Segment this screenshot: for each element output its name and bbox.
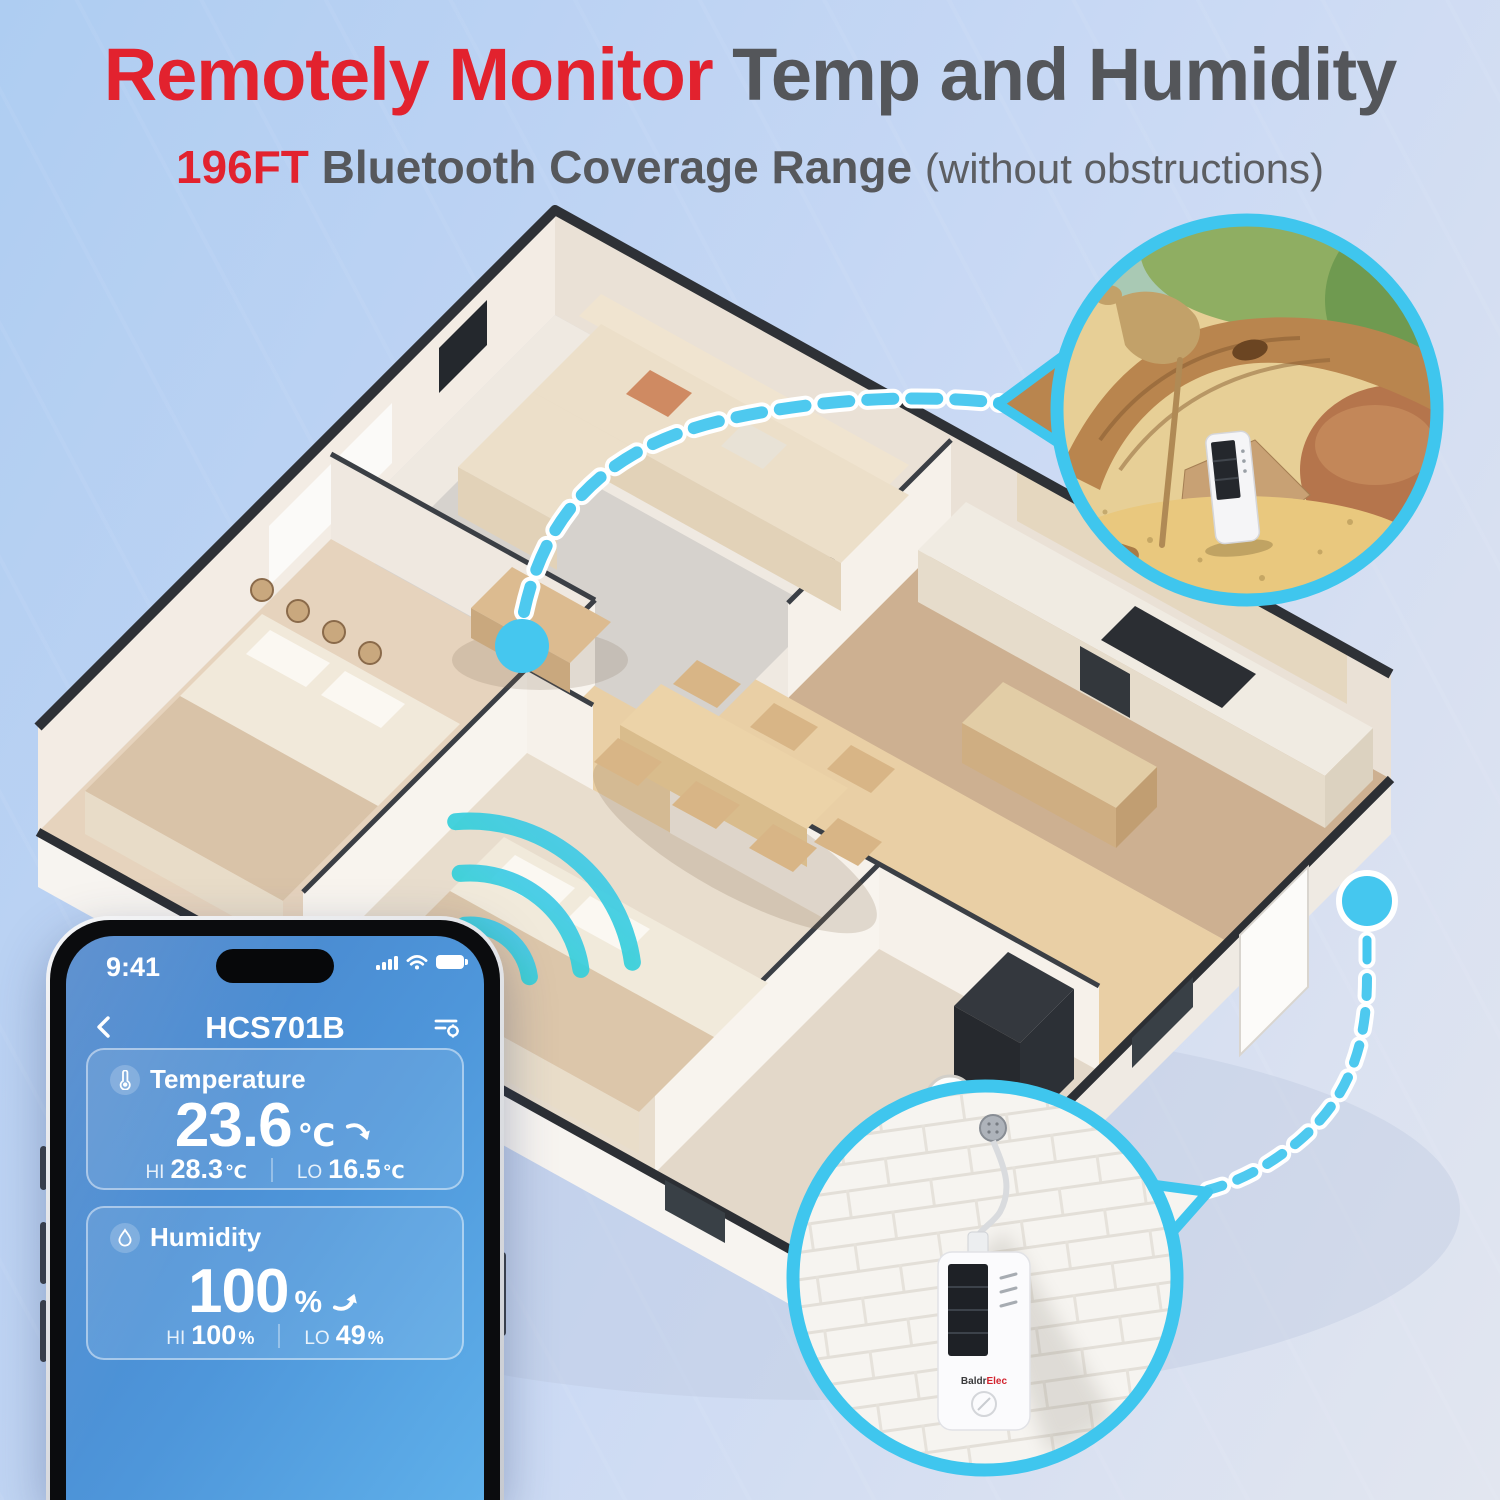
- app-screen: 9:41 HCS701B: [66, 936, 484, 1500]
- humidity-unit: %: [294, 1284, 322, 1320]
- temperature-card: Temperature 23.6 ℃ HI28.3℃ LO16.5℃: [86, 1048, 464, 1190]
- temperature-unit: ℃: [298, 1118, 336, 1154]
- page-subtitle: 196FT Bluetooth Coverage Range (without …: [0, 140, 1500, 194]
- humidity-value: 100: [188, 1256, 288, 1327]
- marketing-page: Remotely Monitor Temp and Humidity 196FT…: [0, 0, 1500, 1500]
- wall-hook: [980, 1115, 1006, 1141]
- subtitle-main: Bluetooth Coverage Range: [309, 141, 925, 193]
- humidity-label: Humidity: [150, 1222, 261, 1253]
- humidity-hilo: HI100% LO49%: [88, 1320, 462, 1351]
- battery-icon: [436, 955, 464, 969]
- droplet-icon: [110, 1223, 140, 1253]
- trend-up-icon: [330, 1284, 362, 1316]
- nav-bar: HCS701B: [82, 1008, 468, 1048]
- temperature-value: 23.6: [175, 1090, 292, 1161]
- sensor-dot-exterior: [1339, 873, 1395, 929]
- trend-down-icon: [343, 1118, 375, 1150]
- wifi-icon: [406, 954, 428, 970]
- title-rest: Temp and Humidity: [713, 33, 1397, 116]
- phone-bezel: 9:41 HCS701B: [50, 920, 500, 1500]
- status-icons: [376, 954, 464, 970]
- subtitle-range: 196FT: [176, 141, 309, 193]
- header: Remotely Monitor Temp and Humidity 196FT…: [0, 36, 1500, 194]
- device-brand-label: BaldrElec: [961, 1376, 1008, 1387]
- humidity-card: Humidity 100 % HI100%: [86, 1206, 464, 1360]
- sensor-dot-living: [495, 619, 549, 673]
- status-time: 9:41: [106, 952, 160, 983]
- temperature-hilo: HI28.3℃ LO16.5℃: [88, 1154, 462, 1185]
- subtitle-note: (without obstructions): [925, 145, 1324, 192]
- signal-bars-icon: [376, 954, 398, 970]
- device-name-title: HCS701B: [82, 1010, 468, 1046]
- sensor-device-wall: BaldrElec: [938, 1252, 1030, 1430]
- title-highlight: Remotely Monitor: [104, 33, 713, 116]
- settings-button[interactable]: [432, 1012, 462, 1042]
- dynamic-island: [216, 949, 334, 983]
- page-title: Remotely Monitor Temp and Humidity: [0, 36, 1500, 114]
- phone-mockup: 9:41 HCS701B: [46, 916, 504, 1500]
